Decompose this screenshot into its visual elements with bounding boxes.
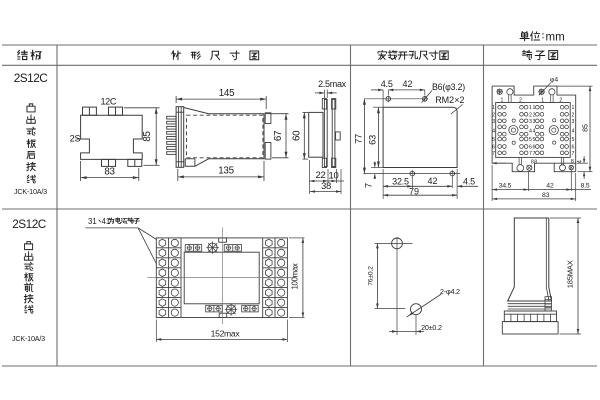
svg-text:5: 5 (532, 137, 535, 143)
svg-text:4: 4 (532, 128, 535, 134)
svg-text:2: 2 (492, 112, 495, 118)
svg-text:8.5: 8.5 (581, 182, 590, 189)
svg-text:3: 3 (571, 119, 574, 125)
svg-text:1: 1 (532, 105, 535, 111)
svg-text:5: 5 (571, 137, 574, 143)
svg-text:63: 63 (366, 135, 377, 145)
svg-text:1: 1 (492, 105, 495, 111)
svg-text:2S12C: 2S12C (12, 217, 47, 231)
svg-text:83: 83 (104, 167, 115, 178)
svg-text:2: 2 (532, 112, 535, 118)
svg-text:42: 42 (427, 176, 437, 186)
svg-text:2S12C: 2S12C (14, 71, 49, 85)
svg-text:60: 60 (292, 130, 303, 141)
svg-text:7: 7 (571, 151, 574, 157)
svg-text:7: 7 (492, 151, 495, 157)
svg-text:42: 42 (546, 182, 554, 189)
svg-text:2: 2 (571, 112, 574, 118)
svg-text:100max: 100max (291, 263, 300, 289)
svg-text:85: 85 (142, 131, 153, 142)
svg-text:12C: 12C (100, 96, 116, 106)
svg-text:67: 67 (273, 131, 284, 141)
svg-text:85: 85 (583, 124, 590, 132)
svg-text:8: 8 (534, 159, 537, 165)
svg-text:31: 31 (88, 217, 97, 226)
svg-text:RM2×2: RM2×2 (435, 95, 464, 105)
svg-text:76±0.2: 76±0.2 (367, 266, 374, 286)
svg-text:38: 38 (321, 181, 331, 192)
svg-text:7: 7 (532, 151, 535, 157)
svg-text:10: 10 (329, 171, 339, 182)
svg-text:42: 42 (402, 79, 412, 89)
svg-text:6: 6 (571, 145, 574, 151)
svg-text:2.5max: 2.5max (318, 79, 347, 89)
svg-text:φ4: φ4 (550, 77, 558, 84)
svg-text:B6(φ3.2): B6(φ3.2) (432, 82, 465, 92)
svg-text:2-φ4.2: 2-φ4.2 (440, 287, 460, 296)
svg-text:3: 3 (532, 119, 535, 125)
svg-text:185MAX: 185MAX (566, 260, 575, 288)
svg-text:34.5: 34.5 (499, 182, 512, 189)
svg-text:7: 7 (363, 183, 374, 188)
svg-text:4.5: 4.5 (381, 79, 393, 89)
svg-text:152max: 152max (211, 329, 241, 339)
svg-text:41: 41 (102, 217, 111, 226)
svg-text:145: 145 (219, 88, 235, 99)
svg-text:77: 77 (353, 134, 364, 144)
svg-text:JCK-10A/3: JCK-10A/3 (12, 334, 45, 343)
svg-text:JCK-10A/3: JCK-10A/3 (14, 187, 47, 196)
svg-text:4: 4 (571, 128, 574, 134)
svg-text:6: 6 (532, 145, 535, 151)
svg-text:4: 4 (492, 128, 495, 134)
svg-text:6: 6 (492, 145, 495, 151)
svg-text:3: 3 (492, 119, 495, 125)
svg-text:mm: mm (546, 31, 565, 43)
svg-text:32.5: 32.5 (392, 176, 409, 186)
svg-text:20±0.2: 20±0.2 (421, 323, 442, 332)
svg-text:5: 5 (492, 137, 495, 143)
svg-text:4.5: 4.5 (463, 176, 475, 186)
svg-text:79: 79 (409, 187, 419, 197)
svg-text:1: 1 (571, 105, 574, 111)
svg-text:22: 22 (316, 170, 326, 181)
svg-text:135: 135 (218, 166, 234, 177)
svg-text:8: 8 (571, 159, 574, 165)
svg-text:83: 83 (542, 192, 550, 199)
